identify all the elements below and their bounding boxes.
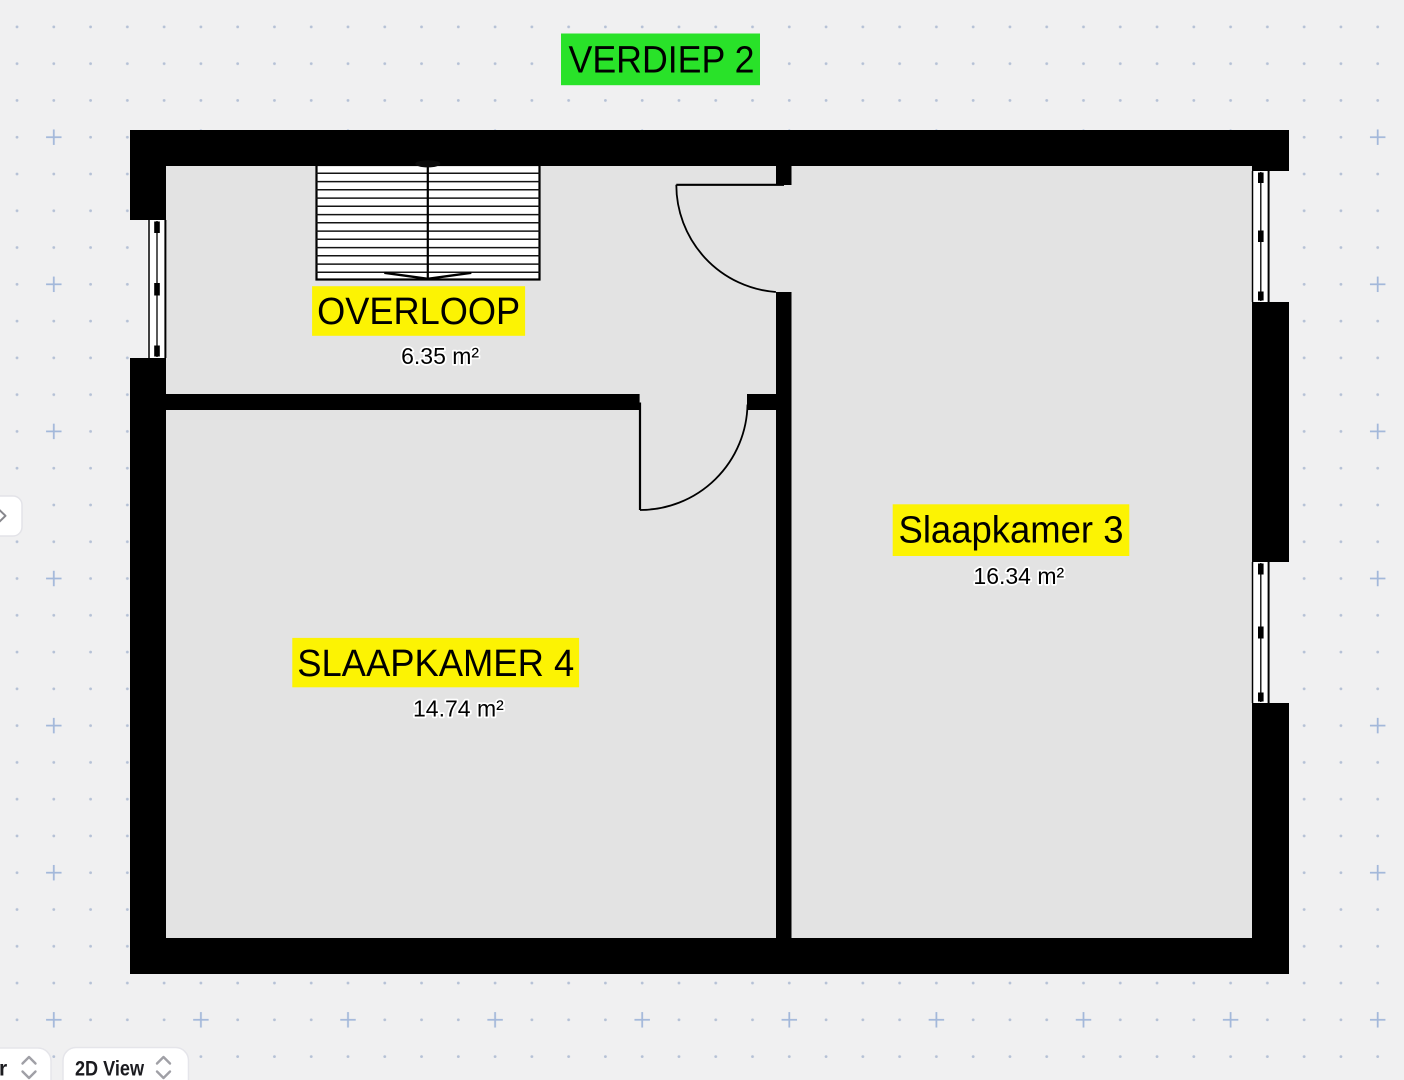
svg-text:SLAAPKAMER 4: SLAAPKAMER 4 [297, 643, 574, 685]
svg-text:VERDIEP 2: VERDIEP 2 [569, 40, 755, 82]
svg-text:16.34 m²: 16.34 m² [973, 563, 1064, 589]
svg-text:14.74 m²: 14.74 m² [413, 696, 504, 722]
svg-text:2D View: 2D View [75, 1058, 145, 1080]
svg-text:OVERLOOP: OVERLOOP [317, 291, 520, 333]
svg-text:Slaapkamer 3: Slaapkamer 3 [899, 510, 1124, 552]
svg-text:6.35 m²: 6.35 m² [401, 343, 479, 369]
svg-text:r: r [0, 1058, 7, 1080]
